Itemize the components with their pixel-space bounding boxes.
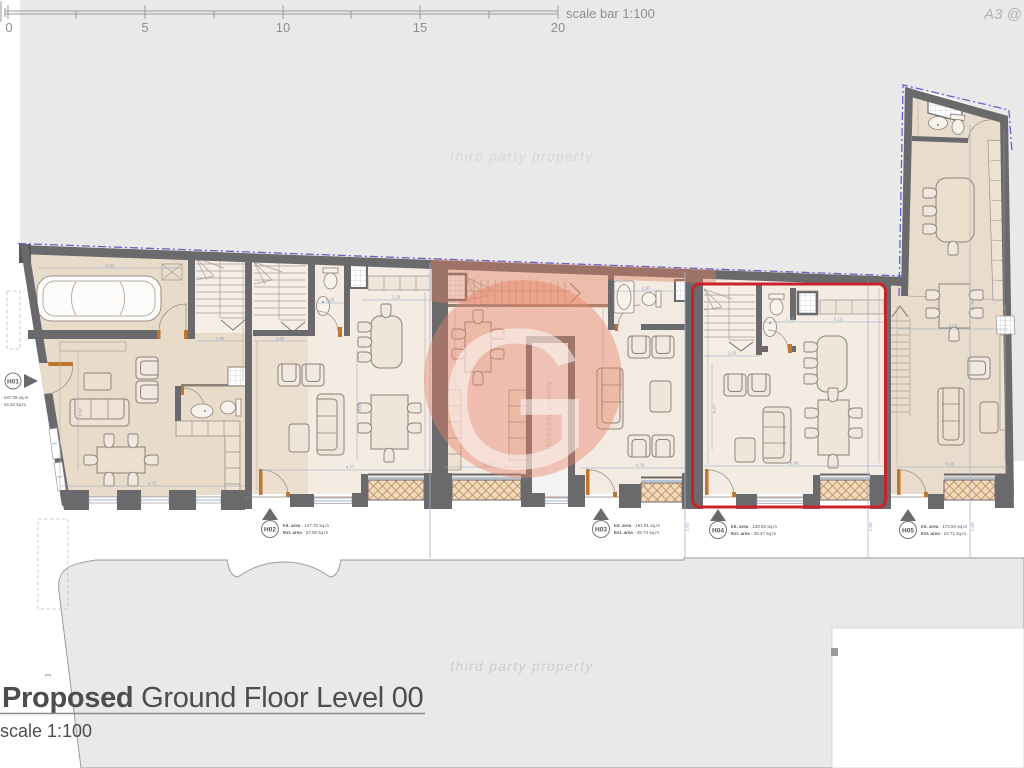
svg-text:6.98: 6.98 xyxy=(790,461,799,466)
svg-text:Ext. area - 29.74 sq.m: Ext. area - 29.74 sq.m xyxy=(614,530,659,535)
svg-text:15: 15 xyxy=(413,20,427,35)
svg-text:Ext. area - 27.00 sq.m: Ext. area - 27.00 sq.m xyxy=(283,530,328,535)
svg-text:Int. area - 173.94 sq.m: Int. area - 173.94 sq.m xyxy=(921,524,967,529)
svg-text:2.97: 2.97 xyxy=(642,286,651,291)
svg-text:Int. area - 128.93 sq.m: Int. area - 128.93 sq.m xyxy=(731,524,777,529)
svg-text:11.88: 11.88 xyxy=(970,299,975,310)
svg-text:20: 20 xyxy=(551,20,565,35)
svg-text:5.05: 5.05 xyxy=(357,402,362,411)
svg-text:H05: H05 xyxy=(902,528,914,535)
svg-text:5.06: 5.06 xyxy=(946,462,955,467)
svg-text:1.85: 1.85 xyxy=(276,336,285,341)
svg-text:Ext. area - 26.47 sq.m: Ext. area - 26.47 sq.m xyxy=(731,531,776,536)
svg-text:10: 10 xyxy=(276,20,290,35)
svg-text:scale 1:100: scale 1:100 xyxy=(0,721,92,741)
svg-text:4.77: 4.77 xyxy=(346,465,355,470)
svg-text:5.27: 5.27 xyxy=(712,404,717,413)
svg-text:A3 @: A3 @ xyxy=(983,6,1022,23)
svg-text:Int. area - 147.70 sq.m: Int. area - 147.70 sq.m xyxy=(283,523,329,528)
svg-text:G: G xyxy=(438,288,594,511)
svg-text:1.91: 1.91 xyxy=(685,522,690,531)
svg-text:scale bar 1:100: scale bar 1:100 xyxy=(566,6,655,21)
svg-text:5: 5 xyxy=(141,20,148,35)
svg-text:1.15: 1.15 xyxy=(786,317,795,322)
svg-text:third party property: third party property xyxy=(450,149,593,164)
svg-text:3.26: 3.26 xyxy=(392,295,401,300)
svg-text:Proposed Ground Floor Level 00: Proposed Ground Floor Level 00 xyxy=(2,682,423,714)
svg-text:4.28: 4.28 xyxy=(636,463,645,468)
svg-text:5.57: 5.57 xyxy=(78,407,83,416)
svg-text:H02: H02 xyxy=(264,527,276,534)
svg-text:H03: H03 xyxy=(595,527,607,534)
svg-text:H01: H01 xyxy=(7,379,19,386)
svg-text:1.80: 1.80 xyxy=(868,522,873,531)
svg-text:0: 0 xyxy=(5,20,12,35)
svg-text:- 16.32 sq.m: - 16.32 sq.m xyxy=(1,402,26,407)
svg-text:Ext. area - 23.71 sq.m: Ext. area - 23.71 sq.m xyxy=(921,531,966,536)
svg-text:H04: H04 xyxy=(712,528,724,535)
svg-text:1.95: 1.95 xyxy=(216,336,225,341)
svg-text:3.15: 3.15 xyxy=(834,317,843,322)
svg-text:1.20: 1.20 xyxy=(326,298,335,303)
svg-text:Int. area - 161.91 sq.m: Int. area - 161.91 sq.m xyxy=(614,523,660,528)
svg-text:third party property: third party property xyxy=(450,659,593,674)
svg-text:5.94: 5.94 xyxy=(106,263,115,268)
svg-text:- 197.09 sq.m: - 197.09 sq.m xyxy=(1,395,29,400)
svg-text:4.75: 4.75 xyxy=(148,481,157,486)
svg-text:3.08: 3.08 xyxy=(949,324,958,329)
svg-text:1.80: 1.80 xyxy=(970,522,975,531)
svg-text:2.05: 2.05 xyxy=(728,351,737,356)
